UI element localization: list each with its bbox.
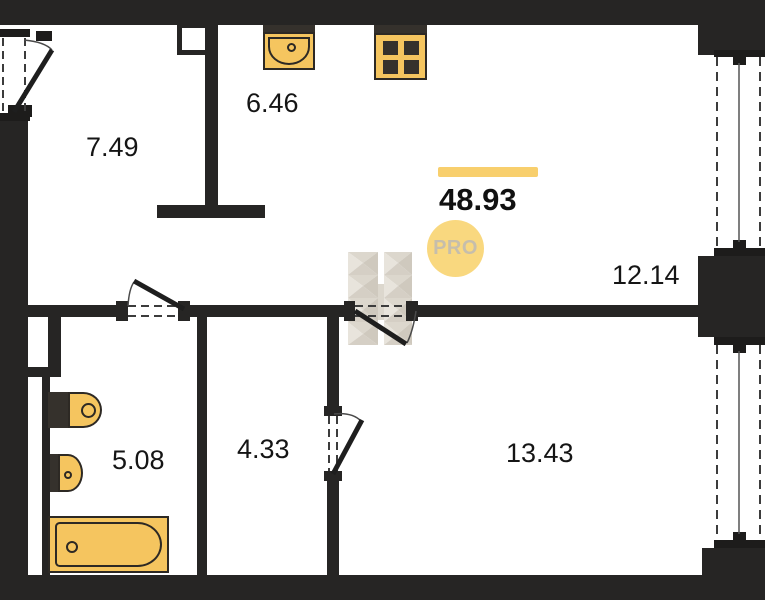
right-window-lower	[717, 345, 760, 540]
room-area-label-kitchen: 6.46	[246, 90, 299, 117]
hallway-door	[329, 414, 362, 474]
bathroom-door	[128, 281, 184, 316]
pro-badge-label: PRO	[433, 237, 478, 260]
wall-hallway-right-lower	[327, 481, 339, 575]
room-area-label-living: 12.14	[612, 262, 680, 289]
window-sill	[714, 50, 765, 57]
door-window-overlay	[0, 0, 765, 600]
door-post	[324, 471, 342, 481]
wall-middle-3	[418, 305, 698, 317]
total-area-label: 48.93	[439, 184, 517, 215]
wall-kitchen-divider-cap	[157, 205, 265, 218]
window-hinge-nub	[36, 31, 52, 41]
toilet-tank	[48, 392, 68, 428]
window-sill	[714, 337, 765, 345]
window-sill	[714, 540, 765, 548]
wall-hallway-left	[197, 317, 207, 575]
wall-middle-2	[190, 305, 345, 317]
wall-left	[0, 121, 28, 600]
wall-corner-top-right	[698, 0, 765, 55]
door-post	[116, 301, 128, 321]
room-area-label-bathroom: 5.08	[112, 447, 165, 474]
wall-top	[0, 0, 765, 25]
window-nub	[733, 240, 746, 248]
left-window-door	[3, 38, 52, 112]
right-window-upper	[717, 57, 760, 248]
window-hinge-nub	[8, 105, 32, 117]
room-area-label-top-left: 7.49	[86, 134, 139, 161]
window-sill	[0, 29, 30, 37]
door-post	[324, 406, 342, 416]
door-post	[344, 301, 355, 321]
toilet-icon	[68, 392, 102, 428]
wall-bath-shaft-bar	[28, 367, 61, 377]
duct-shaft	[177, 23, 210, 55]
washbasin-icon	[58, 454, 83, 492]
pro-badge: PRO	[427, 220, 484, 277]
stove-burners-icon	[374, 33, 427, 80]
window-nub	[733, 345, 746, 353]
kitchen-sink-icon	[263, 32, 315, 70]
total-area-accent-bar	[438, 167, 538, 177]
door-post	[406, 301, 418, 321]
room-area-label-bedroom: 13.43	[506, 440, 574, 467]
window-nub	[733, 57, 746, 65]
h-logo-watermark	[0, 0, 765, 600]
wall-bottom	[0, 575, 765, 600]
floor-plan: 7.49 6.46 12.14 5.08 4.33 13.43 48.93 PR…	[0, 0, 765, 600]
wall-middle-1	[28, 305, 118, 317]
stove-counter	[374, 25, 427, 33]
room-area-label-hallway: 4.33	[237, 436, 290, 463]
window-nub	[733, 532, 746, 540]
door-post	[178, 301, 190, 321]
bathtub-icon	[48, 516, 169, 573]
wall-hallway-right-upper	[327, 317, 339, 408]
wall-corner-bottom-right	[702, 548, 765, 600]
pillar-right	[698, 256, 765, 337]
window-sill	[714, 248, 765, 256]
